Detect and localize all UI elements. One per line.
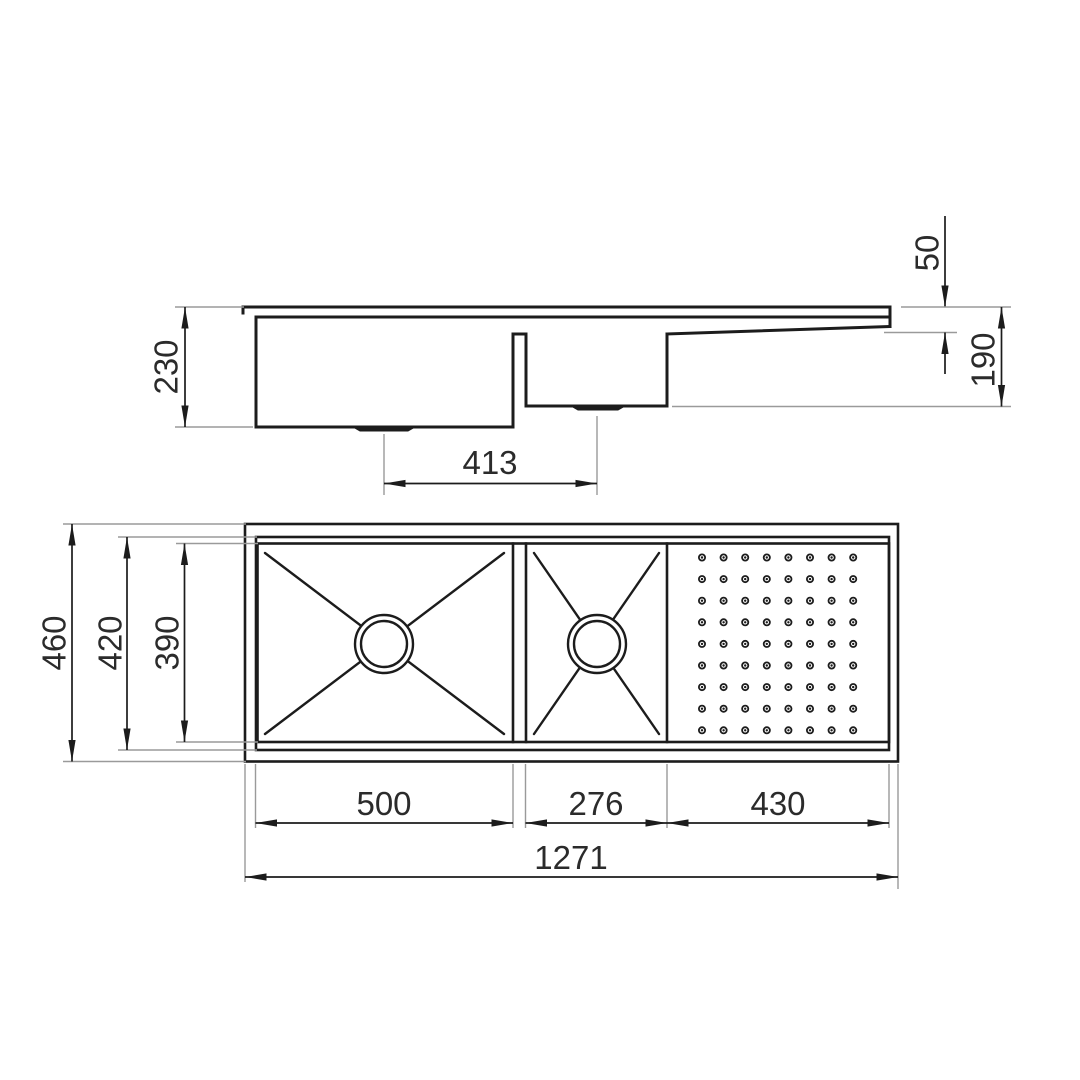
drainer-dimple-center — [809, 729, 811, 731]
drainer-dimple-center — [744, 621, 746, 623]
bowl2-plan — [534, 553, 659, 734]
dim-label-bowl2-depth: 190 — [965, 332, 1002, 387]
side-drainer-slope — [667, 327, 890, 335]
dim-label-drainer-length: 430 — [750, 785, 805, 822]
dim-drainer-drop: 50 — [884, 216, 957, 374]
dim-bowl2-depth: 190 — [672, 307, 1011, 407]
drainer-dimple-center — [830, 600, 832, 602]
drainer-dimple-center — [744, 600, 746, 602]
bowl2-waste-outlet — [571, 406, 625, 410]
dim-bowl1-length: 500 — [256, 785, 514, 823]
drainer-dimple-center — [701, 708, 703, 710]
bowl1-drain-inner — [361, 621, 407, 667]
drainer-dimple-center — [787, 664, 789, 666]
dim-label-bowl1-length: 500 — [356, 785, 411, 822]
drainer-dimple-center — [766, 643, 768, 645]
drainer-dimple-center — [787, 578, 789, 580]
drainer-dimple-center — [830, 686, 832, 688]
dim-bowl-width: 390 — [149, 544, 259, 743]
drainer-dimple-center — [787, 729, 789, 731]
drainer-dimple-center — [701, 578, 703, 580]
drainer-dimple-center — [809, 600, 811, 602]
side-view — [243, 307, 890, 431]
drainer-dimple-center — [722, 621, 724, 623]
drainer-dimple-center — [787, 556, 789, 558]
drainer-dimple-center — [852, 686, 854, 688]
drainer-dimple-center — [766, 708, 768, 710]
drainer-dimple-center — [830, 729, 832, 731]
drainer-dimple-center — [701, 621, 703, 623]
drainer-dimple-center — [787, 621, 789, 623]
drainer-dimple-center — [830, 556, 832, 558]
drainer-dot-grid — [699, 554, 856, 733]
dim-drainer-length: 430 — [667, 785, 889, 823]
dim-label-bowl-width: 390 — [149, 615, 186, 670]
drainer-dimple-center — [852, 621, 854, 623]
drainer-dimple-center — [722, 729, 724, 731]
drainer-dimple-center — [701, 729, 703, 731]
dim-bowl2-length: 276 — [526, 785, 668, 823]
drainer-dimple-center — [744, 686, 746, 688]
drainer-dimple-center — [766, 556, 768, 558]
drawing-canvas: 230 413 50 190 — [0, 0, 1080, 1080]
drainer-dimple-center — [809, 578, 811, 580]
drainer-dimple-center — [809, 686, 811, 688]
dim-overall-length: 1271 — [245, 839, 898, 877]
drainer-dimple-center — [701, 600, 703, 602]
drainer-dimple-center — [722, 556, 724, 558]
sink-technical-drawing: 230 413 50 190 — [0, 0, 1080, 1080]
drainer-dimple-center — [809, 621, 811, 623]
drainer-dimple-center — [830, 664, 832, 666]
drainer-dimple-center — [787, 686, 789, 688]
drainer-dimple-center — [701, 643, 703, 645]
drainer-dimple-center — [809, 664, 811, 666]
dim-label-overall-width: 460 — [36, 615, 73, 670]
drainer-dimple-center — [722, 664, 724, 666]
dim-label-bowl2-length: 276 — [568, 785, 623, 822]
drainer-dimple-center — [722, 708, 724, 710]
plan-view — [245, 524, 898, 762]
drainer-dimple-center — [722, 686, 724, 688]
drainer-dimple-center — [809, 643, 811, 645]
drainer-dimple-center — [830, 621, 832, 623]
drainer-dimple-center — [852, 600, 854, 602]
drainer-dimple-center — [852, 643, 854, 645]
bowl2-drain-inner — [574, 621, 620, 667]
drainer-dimple-center — [852, 729, 854, 731]
drainer-dimple-center — [766, 729, 768, 731]
drainer-dimple-center — [830, 643, 832, 645]
drainer-dimple-center — [830, 708, 832, 710]
drainer-dimple-center — [830, 578, 832, 580]
dim-bowl1-depth: 230 — [148, 307, 254, 427]
drainer-dimple-center — [744, 729, 746, 731]
drainer-dimple-center — [852, 664, 854, 666]
drainer-dimple-center — [787, 708, 789, 710]
dim-label-overall-length: 1271 — [534, 839, 607, 876]
drainer-dimple-center — [809, 708, 811, 710]
dim-label-drainer-drop: 50 — [909, 235, 946, 272]
drainer-dimple-center — [722, 600, 724, 602]
drainer-dimple-center — [701, 556, 703, 558]
drainer-dimple-center — [787, 600, 789, 602]
drainer-dimple-center — [766, 621, 768, 623]
drainer-dimple-center — [787, 643, 789, 645]
drainer-dimple-center — [852, 708, 854, 710]
drainer-dimple-center — [852, 578, 854, 580]
drainer-dimple-center — [852, 556, 854, 558]
dim-label-drain-centers: 413 — [462, 444, 517, 481]
dim-label-bowl1-depth: 230 — [148, 339, 185, 394]
drainer-dimple-center — [744, 643, 746, 645]
drainer-dimple-center — [701, 664, 703, 666]
drainer-dimple-center — [766, 664, 768, 666]
drainer-dimple-center — [766, 600, 768, 602]
drainer-dimple-center — [744, 556, 746, 558]
drainer-dimple-center — [722, 643, 724, 645]
drainer-dimple-center — [744, 708, 746, 710]
drainer-dimple-center — [766, 686, 768, 688]
drainer-dimple-center — [701, 686, 703, 688]
bowl1-plan — [265, 553, 504, 734]
drainer-dimple-center — [722, 578, 724, 580]
drainer-dimple-center — [809, 556, 811, 558]
drainer-dimple-center — [744, 664, 746, 666]
drainer-dimple-center — [744, 578, 746, 580]
dim-label-flange-inner-width: 420 — [92, 615, 129, 670]
drainer-dimple-center — [766, 578, 768, 580]
bowl1-waste-outlet — [353, 427, 415, 431]
dim-overall-width: 460 — [36, 524, 247, 762]
